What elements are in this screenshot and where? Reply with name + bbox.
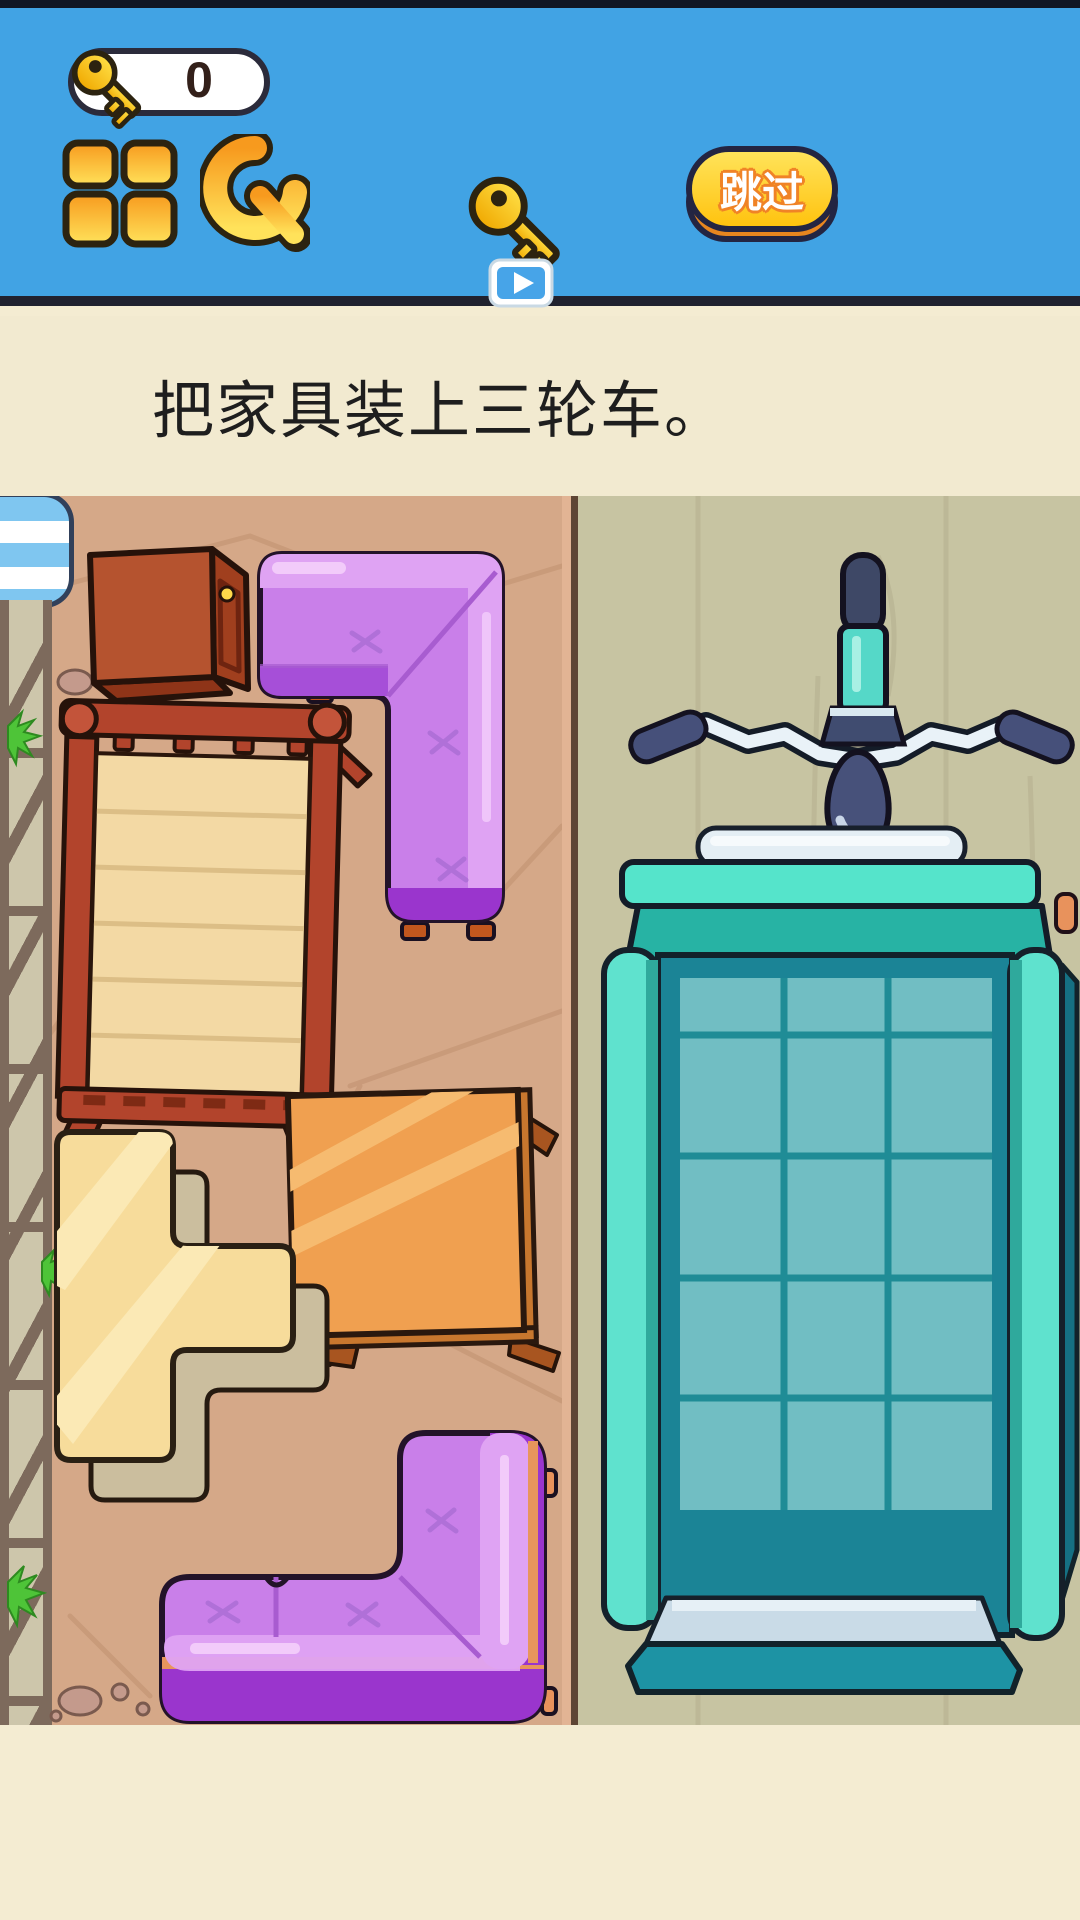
- wheel-hub: [1056, 894, 1076, 932]
- refresh-icon: [200, 134, 310, 254]
- grid-icon: [58, 138, 184, 250]
- key-count: 0: [144, 52, 254, 108]
- game-screen: 0: [0, 0, 1080, 1920]
- handlebar: [626, 555, 1077, 854]
- play-area: [0, 496, 1080, 1725]
- cabinet-knob: [220, 587, 234, 601]
- play-badge-icon: [490, 260, 552, 306]
- menu-button[interactable]: [58, 138, 184, 250]
- furniture-corner-sofa-bottom[interactable]: [150, 1425, 562, 1725]
- skip-button[interactable]: 跳过: [686, 146, 838, 244]
- furniture-cabinet[interactable]: [80, 541, 255, 706]
- key-counter: 0: [68, 48, 270, 116]
- skip-button-label: 跳过: [720, 159, 804, 220]
- tricycle-cart[interactable]: [580, 540, 1080, 1710]
- key-play-icon: [448, 164, 598, 314]
- free-key-button[interactable]: [448, 164, 598, 314]
- level-goal-text: 把家具装上三轮车。: [0, 360, 880, 450]
- top-bar: 0: [0, 8, 1080, 306]
- restart-button[interactable]: [200, 134, 310, 254]
- status-bar: [0, 0, 1080, 8]
- awning: [0, 496, 74, 608]
- instruction-band: 把家具装上三轮车。: [0, 316, 1080, 496]
